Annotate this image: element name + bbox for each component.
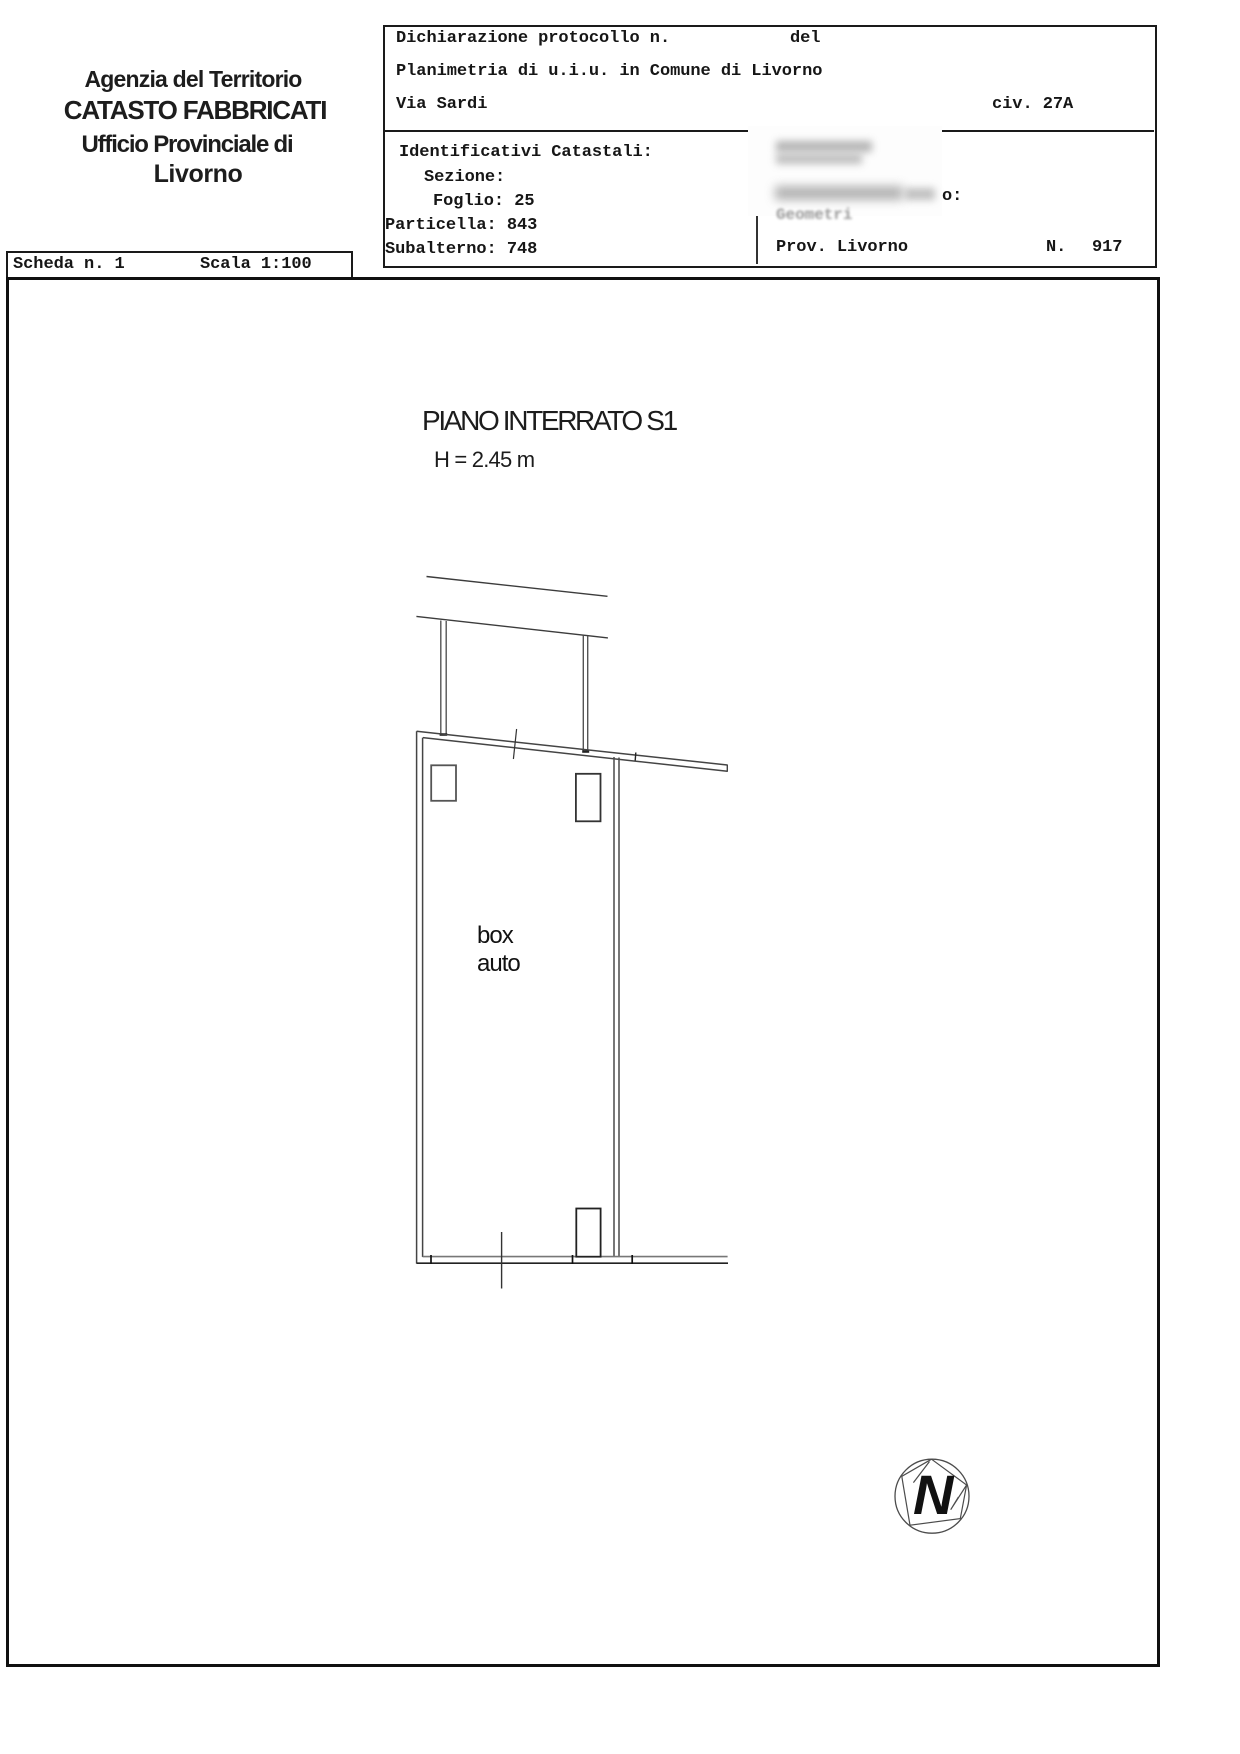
svg-text:N: N <box>913 1463 955 1526</box>
